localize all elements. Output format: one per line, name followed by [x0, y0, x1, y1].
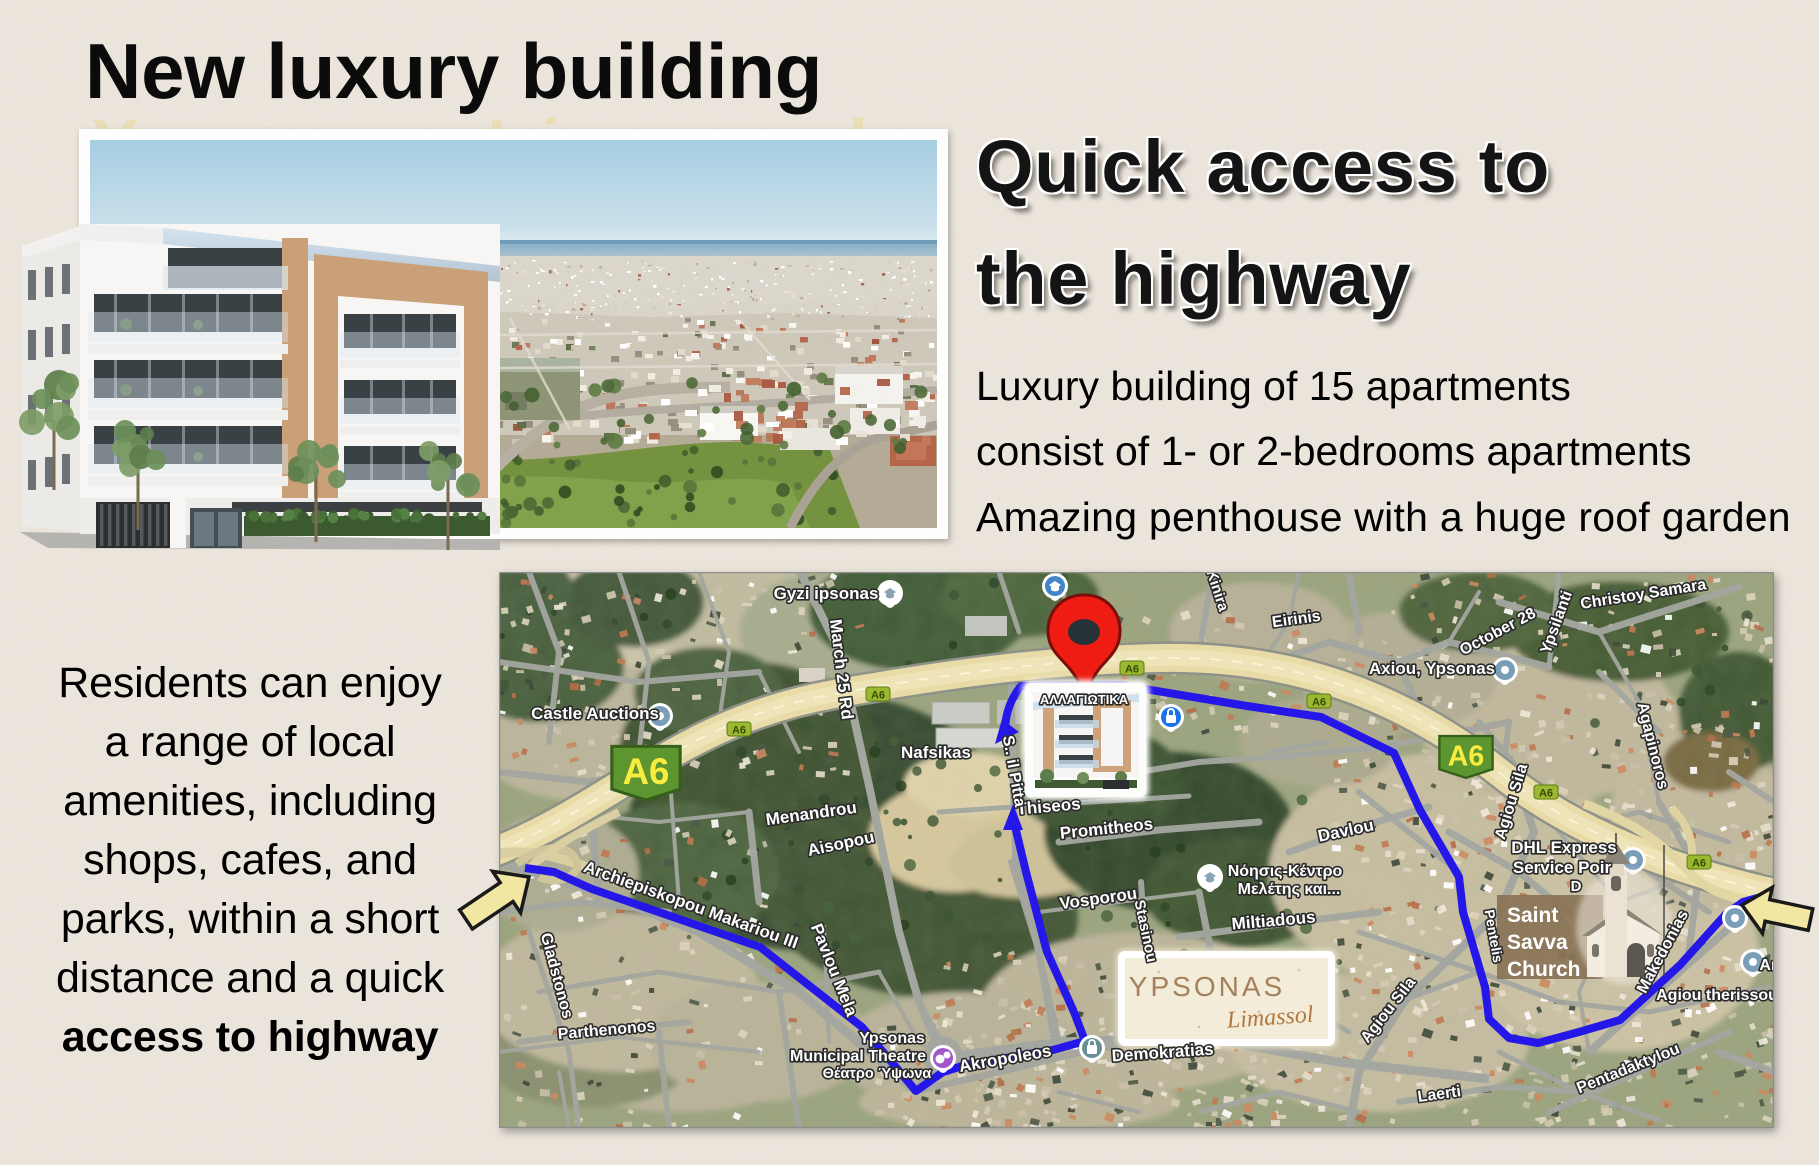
svg-text:A6: A6 — [1692, 858, 1706, 870]
svg-text:A6: A6 — [732, 725, 746, 737]
svg-text:A6: A6 — [1539, 788, 1553, 800]
svg-text:ΑΛΛΑΓΙΩΤΙΚΑ: ΑΛΛΑΓΙΩΤΙΚΑ — [1040, 692, 1129, 707]
svg-text:Ypsonas: Ypsonas — [859, 1030, 925, 1047]
svg-text:Service Poir: Service Poir — [1513, 858, 1612, 877]
svg-text:An: An — [1759, 957, 1774, 974]
svg-text:YPSONAS: YPSONAS — [1129, 971, 1285, 1002]
svg-text:Castle Auctions: Castle Auctions — [531, 704, 659, 723]
svg-text:Church: Church — [1507, 958, 1581, 981]
svg-text:Μελέτης και...: Μελέτης και... — [1238, 881, 1341, 898]
svg-text:A6: A6 — [1448, 741, 1484, 773]
svg-text:Θέατρο Ύψωνα: Θέατρο Ύψωνα — [823, 1066, 932, 1082]
svg-text:A6: A6 — [871, 690, 885, 702]
svg-text:D: D — [1571, 878, 1582, 895]
svg-text:A6: A6 — [1125, 664, 1139, 676]
svg-text:Nafsikas: Nafsikas — [901, 743, 971, 762]
svg-text:A6: A6 — [623, 751, 670, 792]
svg-text:Municipal Theatre: Municipal Theatre — [790, 1048, 926, 1065]
svg-text:Axiou, Ypsonas: Axiou, Ypsonas — [1369, 659, 1495, 678]
svg-text:DHL Express: DHL Express — [1511, 838, 1617, 857]
svg-text:A6: A6 — [1312, 697, 1326, 709]
svg-text:Νόησις-Κέντρο: Νόησις-Κέντρο — [1228, 863, 1343, 880]
svg-text:Agiou therissou: Agiou therissou — [1656, 987, 1774, 1004]
svg-text:Gyzi ipsonas: Gyzi ipsonas — [774, 584, 879, 603]
svg-text:Saint: Saint — [1507, 904, 1558, 927]
svg-text:Savva: Savva — [1507, 931, 1568, 954]
